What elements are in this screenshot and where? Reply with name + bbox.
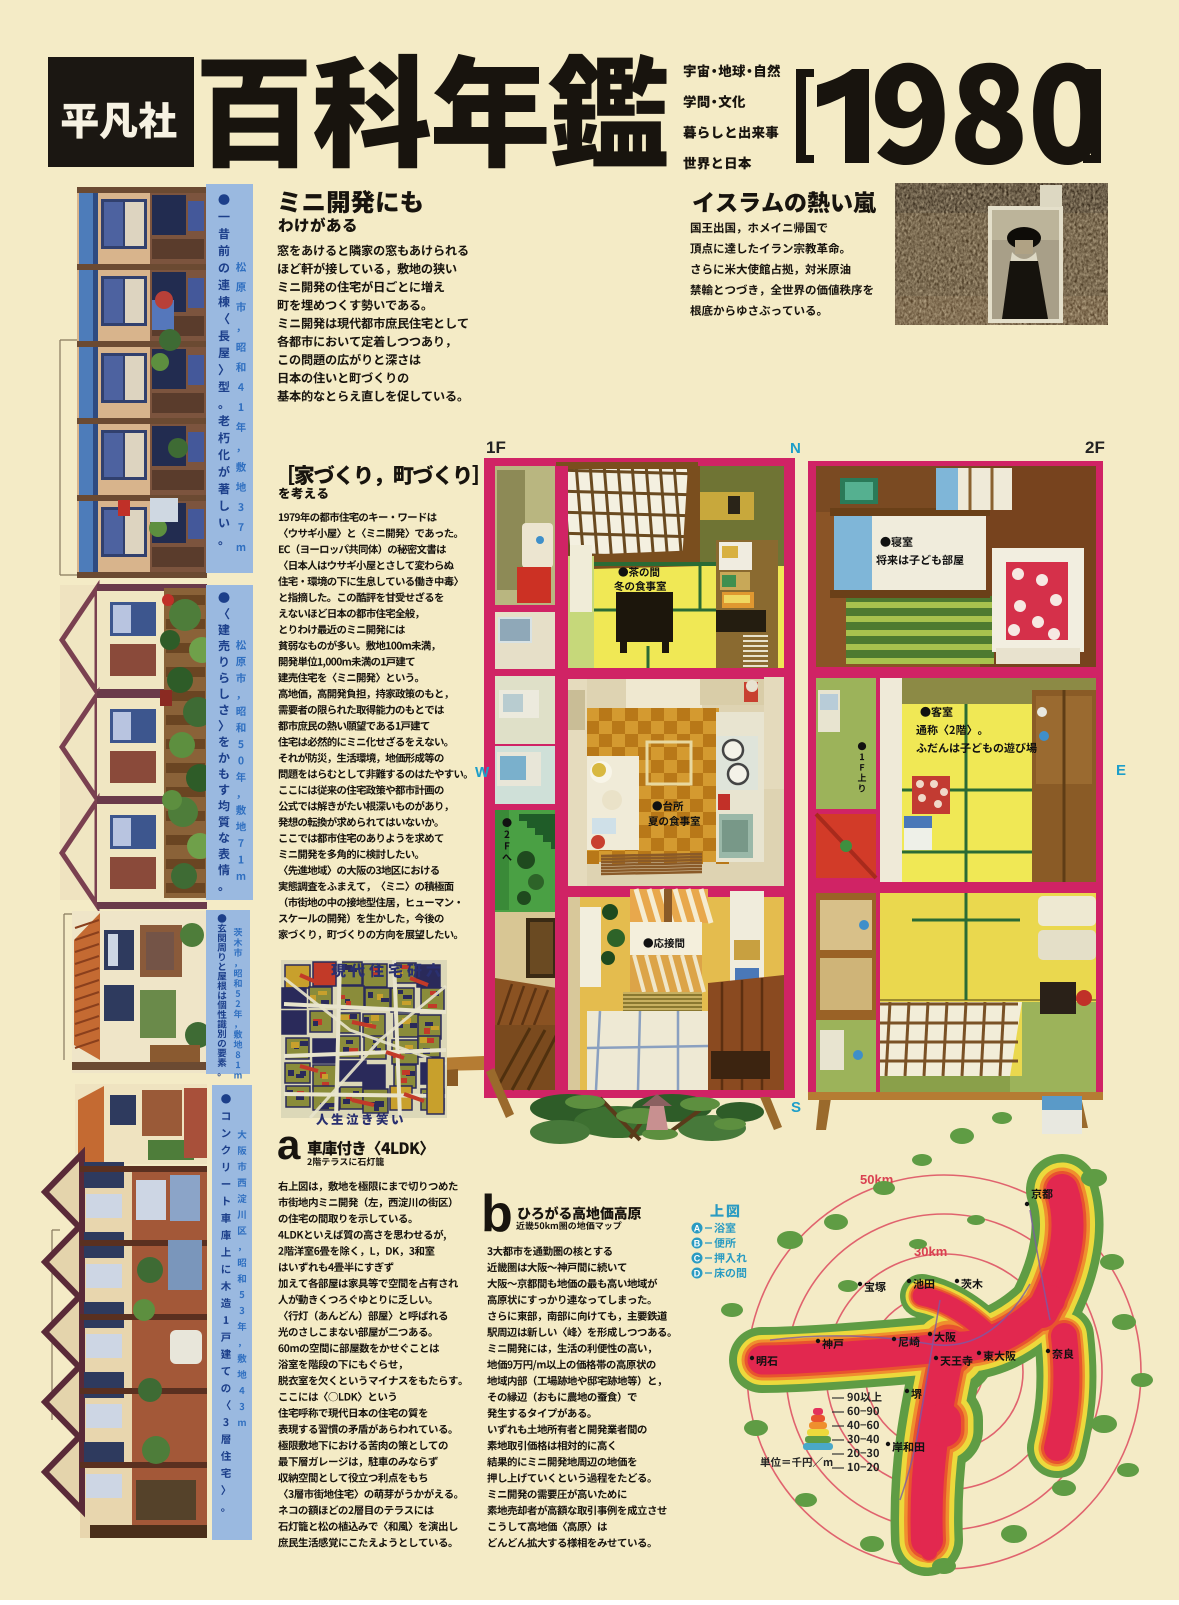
svg-text:C: C (694, 1254, 701, 1264)
svg-text:A: A (694, 1224, 701, 1234)
svg-text:B: B (694, 1239, 701, 1249)
svg-text:1F: 1F (486, 438, 506, 457)
svg-text:b: b (481, 1185, 513, 1243)
svg-text:2F: 2F (1085, 438, 1105, 457)
svg-text:W: W (475, 764, 490, 781)
svg-text:a: a (277, 1121, 301, 1168)
svg-text:N: N (790, 440, 801, 457)
svg-text:E: E (1116, 762, 1126, 779)
svg-text:D: D (694, 1269, 701, 1279)
svg-text:S: S (791, 1099, 801, 1116)
